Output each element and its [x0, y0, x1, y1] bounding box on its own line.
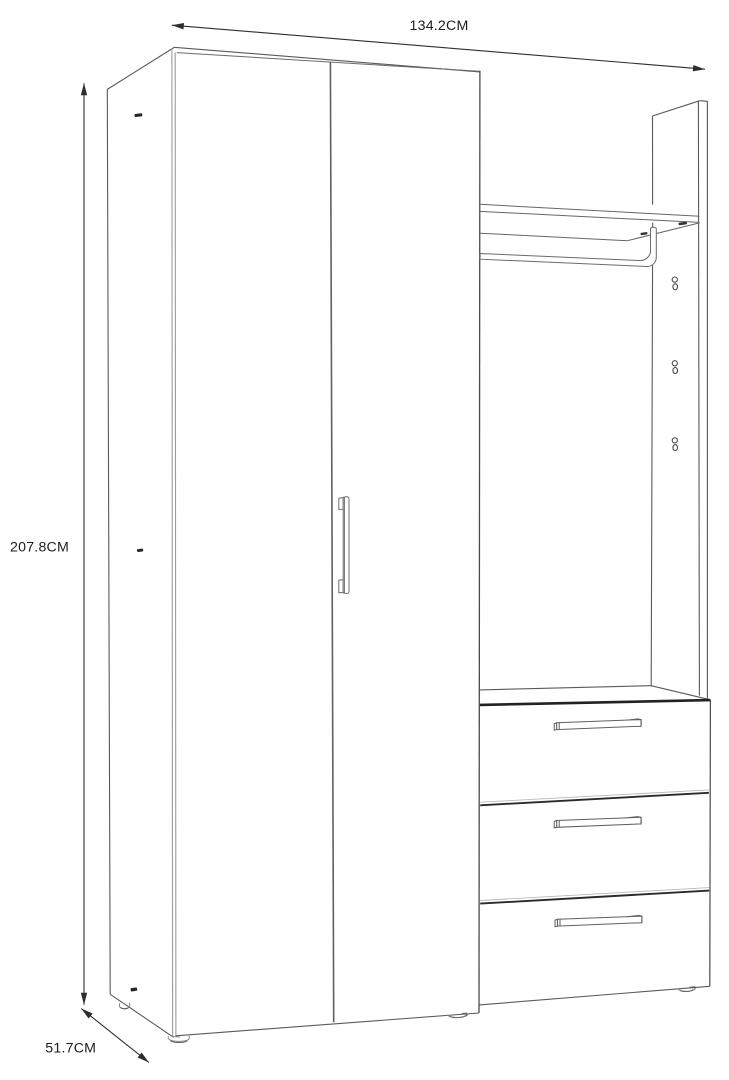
svg-text:51.7CM: 51.7CM	[45, 1041, 96, 1057]
svg-text:207.8CM: 207.8CM	[10, 540, 69, 556]
svg-text:134.2CM: 134.2CM	[410, 18, 469, 34]
